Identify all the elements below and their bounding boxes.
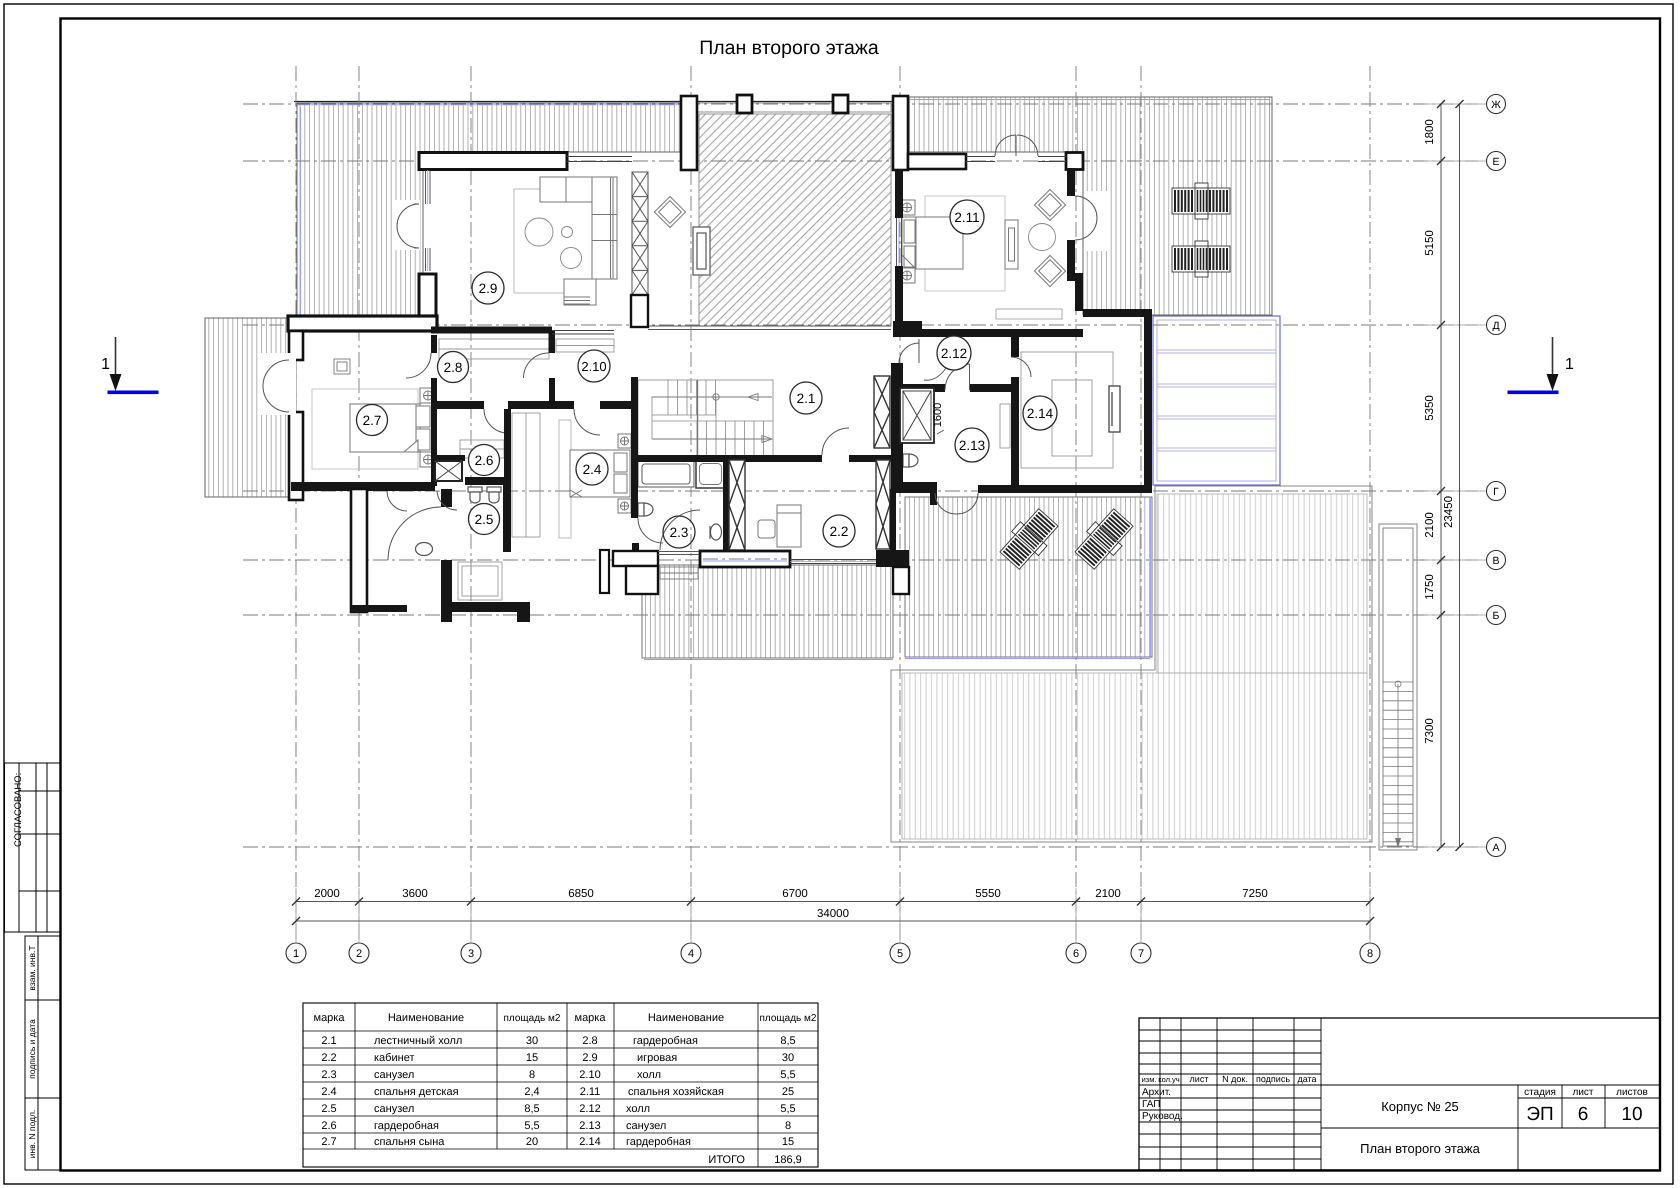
svg-text:санузел: санузел: [374, 1069, 414, 1081]
svg-text:6: 6: [1073, 948, 1079, 960]
svg-text:2.10: 2.10: [579, 1069, 600, 1081]
svg-text:1750: 1750: [1424, 574, 1436, 600]
svg-text:7300: 7300: [1424, 718, 1436, 744]
svg-text:санузел: санузел: [374, 1103, 414, 1115]
svg-text:2100: 2100: [1095, 888, 1121, 900]
svg-text:подпись: подпись: [1256, 1074, 1290, 1084]
svg-text:План второго этажа: План второго этажа: [1360, 1141, 1480, 1156]
svg-text:кол.уч.: кол.уч.: [1158, 1075, 1182, 1084]
svg-text:15: 15: [526, 1052, 538, 1064]
svg-text:2.6: 2.6: [321, 1120, 336, 1132]
svg-text:1800: 1800: [1424, 119, 1436, 145]
svg-text:марка: марка: [575, 1012, 607, 1024]
svg-text:2.2: 2.2: [321, 1052, 336, 1064]
svg-text:2.1: 2.1: [321, 1035, 336, 1047]
svg-text:гардеробная: гардеробная: [626, 1136, 691, 1148]
svg-text:ЭП: ЭП: [1526, 1104, 1553, 1125]
svg-text:спальня детская: спальня детская: [374, 1086, 459, 1098]
svg-text:изм.: изм.: [1142, 1075, 1157, 1084]
svg-text:Г: Г: [1493, 486, 1499, 498]
svg-text:2.12: 2.12: [941, 346, 967, 361]
svg-text:санузел: санузел: [626, 1120, 666, 1132]
svg-text:А: А: [1492, 842, 1499, 854]
svg-text:2.9: 2.9: [479, 281, 498, 296]
svg-text:лестничный холл: лестничный холл: [374, 1035, 462, 1047]
svg-text:25: 25: [782, 1086, 794, 1098]
svg-text:2.3: 2.3: [321, 1069, 336, 1081]
svg-text:8: 8: [785, 1120, 791, 1132]
svg-text:Архит.: Архит.: [1142, 1087, 1171, 1098]
svg-text:6850: 6850: [568, 888, 594, 900]
svg-text:34000: 34000: [817, 908, 849, 920]
svg-text:3: 3: [468, 948, 474, 960]
svg-text:30: 30: [782, 1052, 794, 1064]
svg-text:2: 2: [356, 948, 362, 960]
svg-text:1: 1: [1565, 356, 1574, 373]
svg-text:площадь м2: площадь м2: [504, 1013, 561, 1024]
svg-text:5350: 5350: [1424, 395, 1436, 421]
svg-text:2.2: 2.2: [830, 524, 849, 539]
svg-text:2.4: 2.4: [321, 1086, 336, 1098]
svg-text:Руковод.: Руковод.: [1142, 1111, 1183, 1122]
svg-text:спальня хозяйская: спальня хозяйская: [628, 1086, 724, 1098]
svg-text:листов: листов: [1616, 1087, 1648, 1098]
svg-text:186,9: 186,9: [774, 1154, 802, 1166]
svg-text:2.11: 2.11: [580, 1086, 601, 1098]
svg-text:2000: 2000: [314, 888, 340, 900]
svg-text:1: 1: [293, 948, 299, 960]
svg-text:2.13: 2.13: [959, 438, 985, 453]
svg-text:2.6: 2.6: [475, 453, 494, 468]
svg-text:23450: 23450: [1443, 496, 1455, 528]
svg-text:7250: 7250: [1242, 888, 1268, 900]
svg-text:2.9: 2.9: [582, 1052, 597, 1064]
svg-text:спальня сына: спальня сына: [374, 1136, 445, 1148]
svg-text:6: 6: [1578, 1104, 1589, 1125]
svg-text:5150: 5150: [1424, 230, 1436, 256]
svg-text:2.5: 2.5: [475, 512, 494, 527]
svg-text:гардеробная: гардеробная: [633, 1035, 698, 1047]
svg-text:6700: 6700: [782, 888, 808, 900]
svg-text:2.5: 2.5: [321, 1103, 336, 1115]
svg-text:Наименование: Наименование: [388, 1012, 464, 1024]
svg-text:1: 1: [101, 356, 110, 373]
svg-text:8: 8: [529, 1069, 535, 1081]
svg-text:N док.: N док.: [1222, 1074, 1248, 1084]
svg-text:2.7: 2.7: [363, 413, 382, 428]
svg-text:1600: 1600: [932, 403, 944, 427]
svg-text:кабинет: кабинет: [374, 1052, 414, 1064]
svg-text:8,5: 8,5: [524, 1103, 539, 1115]
svg-text:лист: лист: [1190, 1074, 1209, 1084]
svg-text:30: 30: [526, 1035, 538, 1047]
svg-text:2.11: 2.11: [954, 210, 979, 225]
svg-text:лист: лист: [1572, 1087, 1593, 1098]
svg-text:холл: холл: [626, 1103, 650, 1115]
svg-text:Б: Б: [1493, 610, 1500, 622]
svg-text:марка: марка: [314, 1012, 346, 1024]
svg-text:подпись и дата: подпись и дата: [27, 1019, 37, 1079]
svg-text:2.7: 2.7: [321, 1136, 336, 1148]
svg-text:дата: дата: [1297, 1074, 1316, 1084]
svg-text:Е: Е: [1492, 156, 1499, 168]
svg-text:Д: Д: [1492, 320, 1499, 332]
svg-text:2.14: 2.14: [1027, 406, 1054, 421]
svg-text:ИТОГО: ИТОГО: [708, 1154, 745, 1166]
svg-text:2.10: 2.10: [581, 359, 606, 374]
svg-text:План второго этажа: План второго этажа: [699, 37, 879, 59]
svg-text:площадь м2: площадь м2: [760, 1013, 817, 1024]
svg-text:2,4: 2,4: [524, 1086, 539, 1098]
svg-text:8,5: 8,5: [780, 1035, 795, 1047]
svg-text:2.4: 2.4: [583, 462, 602, 477]
svg-text:2.12: 2.12: [579, 1103, 600, 1115]
svg-text:холл: холл: [637, 1069, 661, 1081]
svg-text:2.8: 2.8: [444, 360, 463, 375]
svg-text:2.3: 2.3: [670, 525, 689, 540]
svg-text:Ж: Ж: [1491, 99, 1501, 111]
svg-text:СОГЛАСОВАНО:: СОГЛАСОВАНО:: [13, 773, 24, 847]
svg-text:гардеробная: гардеробная: [374, 1120, 439, 1132]
svg-text:Корпус № 25: Корпус № 25: [1381, 1099, 1459, 1114]
svg-text:ГАП: ГАП: [1142, 1099, 1161, 1110]
svg-text:стадия: стадия: [1524, 1087, 1556, 1098]
svg-text:5,5: 5,5: [780, 1069, 795, 1081]
svg-text:2.14: 2.14: [579, 1136, 600, 1148]
svg-text:8: 8: [1367, 948, 1373, 960]
svg-text:инв. N подл.: инв. N подл.: [27, 1110, 37, 1159]
svg-text:2.1: 2.1: [797, 391, 816, 406]
svg-text:5550: 5550: [975, 888, 1001, 900]
svg-text:2100: 2100: [1424, 512, 1436, 538]
svg-text:4: 4: [688, 948, 694, 960]
svg-text:10: 10: [1621, 1104, 1642, 1125]
svg-text:7: 7: [1138, 948, 1144, 960]
svg-text:15: 15: [782, 1136, 794, 1148]
svg-text:Наименование: Наименование: [648, 1012, 724, 1024]
svg-text:взам. инв.Т: взам. инв.Т: [27, 945, 37, 990]
svg-text:5,5: 5,5: [780, 1103, 795, 1115]
svg-text:5: 5: [897, 948, 903, 960]
svg-text:20: 20: [526, 1136, 538, 1148]
svg-text:5,5: 5,5: [524, 1120, 539, 1132]
svg-text:2.8: 2.8: [582, 1035, 597, 1047]
svg-text:В: В: [1492, 555, 1499, 567]
svg-text:3600: 3600: [402, 888, 428, 900]
svg-text:2.13: 2.13: [579, 1120, 600, 1132]
svg-text:игровая: игровая: [637, 1052, 677, 1064]
